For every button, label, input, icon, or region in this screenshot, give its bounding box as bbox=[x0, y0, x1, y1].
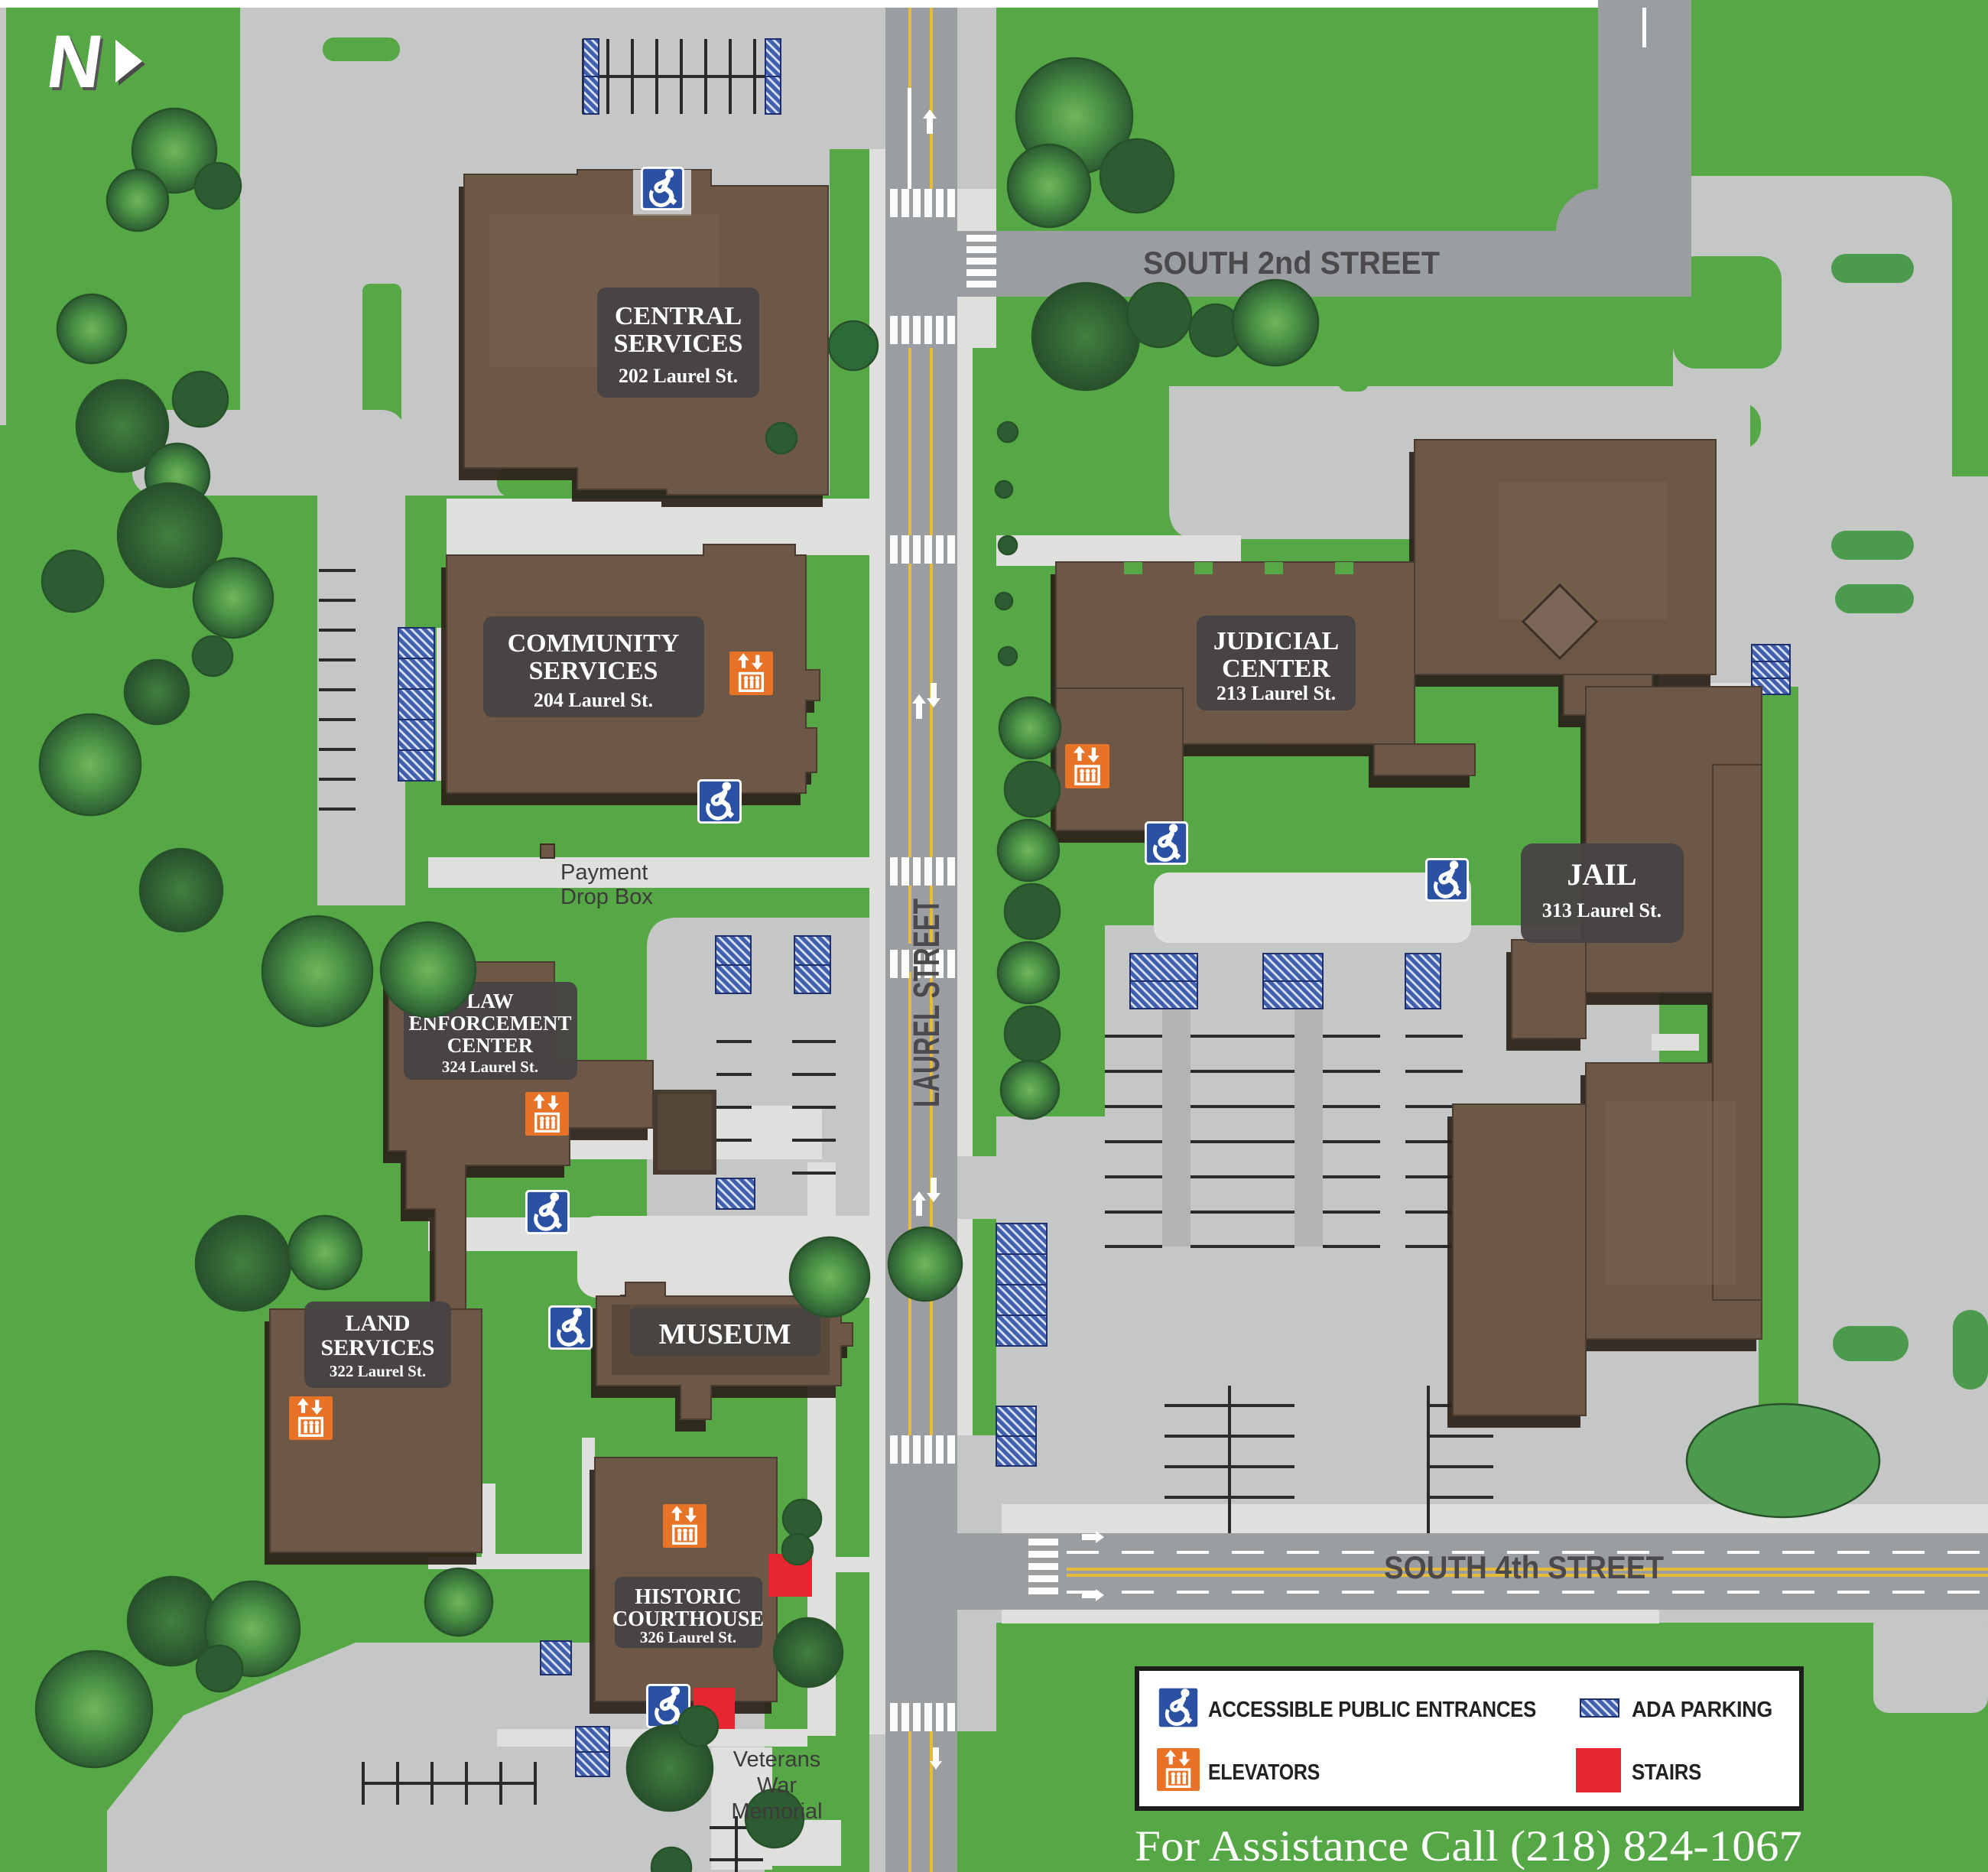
svg-text:LAUREL STREET: LAUREL STREET bbox=[907, 899, 947, 1107]
svg-text:CENTRAL: CENTRAL bbox=[615, 302, 742, 330]
svg-text:CENTER: CENTER bbox=[1222, 655, 1330, 683]
svg-text:LAND: LAND bbox=[345, 1311, 410, 1336]
svg-text:ADA PARKING: ADA PARKING bbox=[1632, 1698, 1772, 1722]
svg-text:SERVICES: SERVICES bbox=[614, 330, 743, 358]
svg-text:ACCESSIBLE PUBLIC ENTRANCES: ACCESSIBLE PUBLIC ENTRANCES bbox=[1208, 1698, 1536, 1722]
svg-text:STAIRS: STAIRS bbox=[1632, 1760, 1701, 1785]
svg-text:COMMUNITY: COMMUNITY bbox=[508, 629, 680, 658]
svg-text:MUSEUM: MUSEUM bbox=[658, 1318, 791, 1350]
svg-text:HISTORIC: HISTORIC bbox=[635, 1585, 742, 1609]
svg-text:SERVICES: SERVICES bbox=[320, 1335, 434, 1360]
svg-text:War: War bbox=[757, 1773, 797, 1798]
svg-text:LAW: LAW bbox=[466, 990, 514, 1012]
svg-text:Payment: Payment bbox=[560, 860, 648, 885]
svg-text:324 Laurel St.: 324 Laurel St. bbox=[442, 1058, 538, 1076]
svg-text:202 Laurel St.: 202 Laurel St. bbox=[619, 365, 738, 387]
svg-text:JAIL: JAIL bbox=[1567, 857, 1636, 892]
svg-text:SOUTH 4th STREET: SOUTH 4th STREET bbox=[1384, 1549, 1664, 1585]
svg-text:JUDICIAL: JUDICIAL bbox=[1213, 627, 1339, 655]
svg-text:326 Laurel St.: 326 Laurel St. bbox=[640, 1628, 736, 1646]
svg-text:322 Laurel St.: 322 Laurel St. bbox=[330, 1362, 426, 1380]
svg-text:313 Laurel St.: 313 Laurel St. bbox=[1542, 899, 1662, 921]
svg-text:Drop Box: Drop Box bbox=[560, 885, 653, 909]
svg-text:Memorial: Memorial bbox=[731, 1799, 822, 1824]
svg-text:213 Laurel St.: 213 Laurel St. bbox=[1217, 682, 1336, 704]
svg-text:For Assistance Call (218) 824-: For Assistance Call (218) 824-1067 bbox=[1135, 1822, 1802, 1870]
svg-text:SOUTH 2nd STREET: SOUTH 2nd STREET bbox=[1143, 245, 1440, 281]
svg-text:ELEVATORS: ELEVATORS bbox=[1208, 1760, 1320, 1785]
svg-text:CENTER: CENTER bbox=[447, 1034, 534, 1057]
svg-text:SERVICES: SERVICES bbox=[529, 657, 658, 685]
svg-text:Veterans: Veterans bbox=[733, 1747, 820, 1772]
svg-text:204 Laurel St.: 204 Laurel St. bbox=[534, 689, 653, 711]
